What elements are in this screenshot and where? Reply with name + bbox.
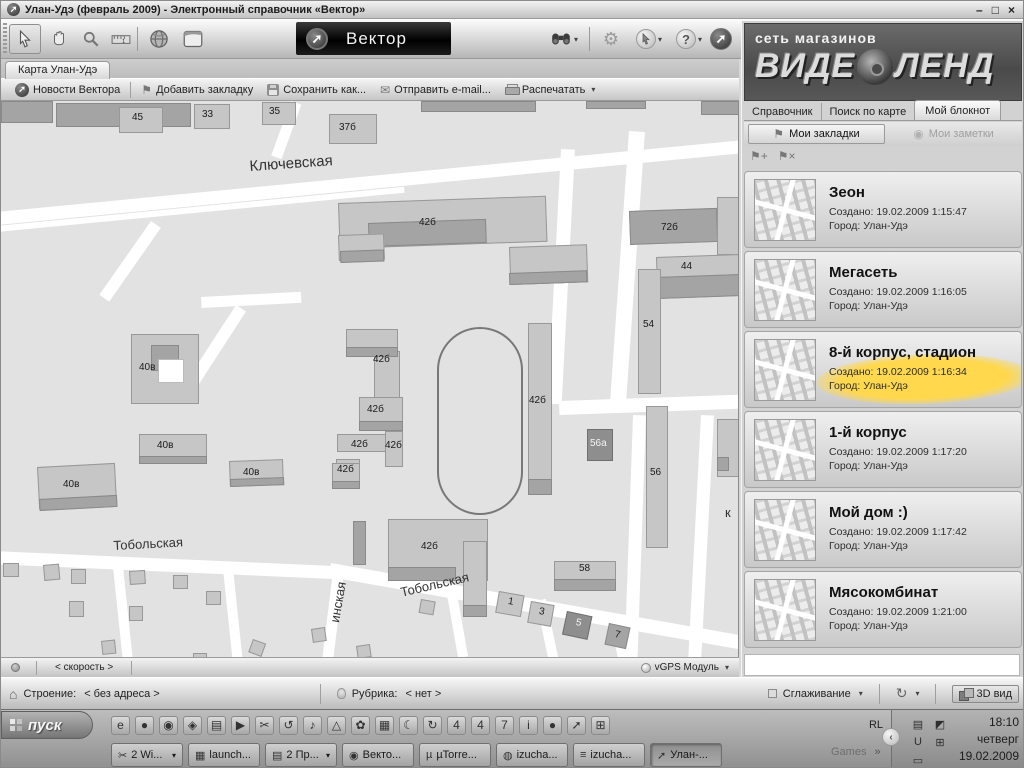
map-status-strip: < скорость > vGPS Модуль ▾ [1,657,739,677]
videoland-logo-banner: сеть магазинов ВИДЕ ЛЕНД [744,23,1022,101]
note-pin-icon: ◉ [913,127,923,141]
map-building [139,456,207,464]
map-building [206,591,221,605]
sync-icon[interactable]: ↻ [896,685,908,702]
window-button-icon: ◉ [349,749,359,762]
bookmark-city: Город: Улан-Удэ [829,299,1015,313]
map-street [201,292,301,308]
quick-launch-icon[interactable]: ● [543,716,562,735]
bookmark-thumbnail [754,419,816,481]
map-label: 44 [681,261,692,272]
vgps-icon [641,663,651,673]
map-label: 37б [339,122,356,133]
window-title: Улан-Удэ (февраль 2009) - Электронный сп… [25,4,365,16]
videoland-tagline: сеть магазинов [755,30,1011,46]
map-label: 40в [243,467,259,478]
map-building [346,347,398,357]
binoculars-icon [550,30,572,48]
save-as-button[interactable]: Сохранить как... [263,83,370,97]
map-building [586,101,646,109]
my-notes-label: Мои заметки [929,128,994,140]
taskbar-window-button[interactable]: ➚ Улан-... ▾ [650,743,722,767]
gps-led-icon [11,663,20,672]
add-bookmark-small-icon[interactable]: ⚑+ [750,149,768,167]
add-bookmark-icon: ⚑ [141,83,152,97]
quick-launch-icon[interactable]: ▤ [207,716,226,735]
bookmark-thumbnail [754,499,816,561]
window-button-label: launch... [209,749,251,761]
tray-icon-5[interactable]: ▭ [910,752,926,768]
map-street [688,415,714,657]
map-building [701,101,739,115]
map-building [528,479,552,495]
taskbar-window-button[interactable]: ✂ 2 Wi... ▾ [111,743,183,767]
window-button-icon: ➚ [657,749,666,762]
quick-launch-icon[interactable]: ● [135,716,154,735]
taskbar-window-button[interactable]: ▦ launch... ▾ [188,743,260,767]
map-building [419,599,436,615]
clock-date: 19.02.2009 [959,748,1019,765]
bookmark-list-item[interactable]: 1-й корпус Создано: 19.02.2009 1:17:20 Г… [744,411,1022,488]
map-building [509,270,587,285]
map-building [3,563,19,577]
map-building [1,101,53,123]
map-building [230,477,284,487]
house-icon: ⌂ [9,686,17,702]
title-bar: ➚ Улан-Удэ (февраль 2009) - Электронный … [1,1,1024,19]
quick-launch-icon[interactable]: ⊞ [591,716,610,735]
view-3d-button[interactable]: 3D вид [952,685,1019,703]
vector-logo-text: Вектор [346,29,407,49]
app-window: ➚ Улан-Удэ (февраль 2009) - Электронный … [0,0,1024,768]
bookmark-created: Создано: 19.02.2009 1:17:20 [829,445,1015,459]
save-icon [267,84,279,96]
map-label: 40в [63,479,79,490]
map-building [638,269,661,394]
save-as-label: Сохранить как... [283,84,366,96]
pointer-dropdown-caret[interactable]: ▾ [658,35,662,44]
map-label: 42б [529,395,546,406]
ruler-icon: 1 [111,30,131,48]
map-label: 40в [157,440,173,451]
map-building [528,323,552,495]
map-label: 56а [590,438,607,449]
window-button-icon: ✂ [118,749,127,762]
cube-icon [959,688,972,700]
minimize-button[interactable]: – [976,4,983,16]
bookmark-created: Создано: 19.02.2009 1:16:05 [829,285,1015,299]
bookmark-city: Город: Улан-Удэ [829,619,1015,633]
quick-launch-icon[interactable]: ▶ [231,716,250,735]
rubric-label: Рубрика: [352,688,398,700]
map-building [359,421,403,431]
sync-caret[interactable]: ▾ [915,689,919,698]
map-building [129,570,146,585]
bookmark-list-empty-area [744,654,1020,676]
map-label: 42б [419,217,436,228]
bookmark-title: 8-й корпус, стадион [829,344,1015,361]
quick-launch-icon[interactable]: ☾ [399,716,418,735]
pan-tool-button[interactable] [43,24,75,54]
magnifier-icon [82,30,100,48]
taskbar-window-button[interactable]: ◍ izucha... ▾ [496,743,568,767]
map-building [311,627,327,643]
quick-launch-icon[interactable]: ◈ [183,716,202,735]
quick-launch-icon[interactable]: △ [327,716,346,735]
quick-launch-icon[interactable]: ✂ [255,716,274,735]
bookmark-list-item[interactable]: Мой дом :) Создано: 19.02.2009 1:17:42 Г… [744,491,1022,568]
smoothing-caret[interactable]: ▾ [859,689,863,698]
map-label: к [725,505,731,520]
bookmark-actions-row: ⚑+ ⚑× [750,149,1020,167]
svg-text:1: 1 [122,39,125,45]
globe-icon [149,29,169,49]
tray-icon-2[interactable]: ◩ [932,716,948,732]
bookmark-city: Город: Улан-Удэ [829,219,1015,233]
map-building [101,640,116,655]
speed-button[interactable]: < скорость > [45,661,123,674]
delete-bookmark-small-icon[interactable]: ⚑× [778,149,796,167]
map-label: 33 [202,109,213,120]
map-building [43,564,60,581]
subtab-my-notes[interactable]: ◉ Мои заметки [885,124,1022,144]
map-building [353,521,366,565]
vector-arrow-icon: ➚ [710,28,732,50]
building-value: < без адреса > [84,688,160,700]
vector-home-button[interactable]: ➚ [705,24,737,54]
map-building [656,274,739,299]
notebook-subtabs: ⚑ Мои закладки ◉ Мои заметки [744,122,1022,146]
videoland-word-1: ВИДЕ [755,47,855,86]
videoland-word-2: ЛЕНД [895,47,994,86]
send-email-label: Отправить e-mail... [394,84,491,96]
close-button[interactable]: × [1008,4,1015,16]
map-building [158,359,184,383]
window-button-icon: µ [426,749,432,761]
window-button-icon: ▤ [272,749,282,762]
pointer-mode-button[interactable]: ▾ [629,24,669,54]
panel-icon [183,30,203,48]
bookmark-thumbnail [754,179,816,241]
map-label: 42б [367,404,384,415]
map-street [99,221,160,302]
select-tool-button[interactable] [9,24,41,54]
status-bar: ⌂ Строение: < без адреса > Рубрика: < не… [1,677,1024,709]
quick-launch-icon[interactable]: ◉ [159,716,178,735]
taskbar-window-button[interactable]: ≡ izucha... ▾ [573,743,645,767]
window-button-label: 2 Пр... [286,749,318,761]
map-label: 42б [373,354,390,365]
search-dropdown-caret[interactable]: ▾ [574,35,578,44]
bookmark-city: Город: Улан-Удэ [829,379,1015,393]
window-button-label: Векто... [363,749,402,761]
bookmark-list-item[interactable]: Мясокомбинат Создано: 19.02.2009 1:21:00… [744,571,1022,648]
map-label: 42б [351,439,368,450]
quick-launch-icon[interactable]: ▦ [375,716,394,735]
zoom-tool-button[interactable] [75,24,107,54]
map-building [463,605,487,617]
vgps-module-button[interactable]: vGPS Модуль ▾ [641,662,739,673]
games-label: Games [831,746,866,758]
app-logo-icon: ➚ [7,3,20,16]
map-building [356,644,372,657]
add-bookmark-label: Добавить закладку [156,84,253,96]
taskbar-clock: 18:10 четверг 19.02.2009 [959,714,1019,765]
map-building [332,481,360,489]
map-building [717,457,729,471]
bookmark-title: Мясокомбинат [829,584,1015,601]
vector-news-icon: ➚ [15,83,29,97]
quick-launch-icon[interactable]: ✿ [351,716,370,735]
map-label: Тобольская [113,534,183,553]
panel-toggle-button[interactable] [177,24,209,54]
map-label: 72б [661,222,678,233]
window-button-label: izucha... [590,749,631,761]
vgps-label: vGPS Модуль [655,662,719,673]
map-label: Ключевская [249,152,333,175]
bookmark-list-item[interactable]: 8-й корпус, стадион Создано: 19.02.2009 … [744,331,1022,408]
vector-news-label: Новости Вектора [33,84,120,96]
map-label: 54 [643,319,654,330]
print-button[interactable]: Распечатать ▾ [501,83,599,97]
taskbar-windows: ✂ 2 Wi... ▾ ▦ launch... ▾ ▤ 2 Пр... ▾ [111,741,722,768]
map-building [129,606,143,621]
view-3d-label: 3D вид [976,688,1012,700]
print-label: Распечатать [522,84,585,96]
print-dropdown-caret[interactable]: ▾ [591,85,595,94]
bookmark-created: Создано: 19.02.2009 1:15:47 [829,205,1015,219]
games-chevron-icon[interactable]: » [874,746,880,758]
bookmark-title: Мой дом :) [829,504,1015,521]
bookmark-title: Мегасеть [829,264,1015,281]
bookmark-flag-icon: ⚑ [773,127,784,141]
cd-disc-icon [857,49,893,85]
window-button-label: µTorre... [436,749,477,761]
bookmark-city: Город: Улан-Удэ [829,459,1015,473]
tab-row: Карта Улан-Удэ [1,59,739,79]
bookmark-thumbnail [754,579,816,641]
help-button[interactable]: ? ▾ [669,24,709,54]
start-label: пуск [28,717,61,734]
taskbar-window-button[interactable]: ◉ Векто... ▾ [342,743,414,767]
quick-launch-icon[interactable]: ♪ [303,716,322,735]
smoothing-checkbox[interactable] [768,689,777,698]
windows-flag-icon [10,719,22,731]
window-button-caret[interactable]: ▾ [172,751,176,760]
map-label: 58 [579,563,590,574]
map-building [173,575,188,589]
cursor-icon [16,30,34,48]
my-bookmarks-label: Мои закладки [789,128,860,140]
start-button[interactable]: пуск [1,711,93,739]
bookmark-created: Создано: 19.02.2009 1:21:00 [829,605,1015,619]
tab-directory[interactable]: Справочник [744,103,822,120]
window-button-label: 2 Wi... [131,749,162,761]
add-bookmark-button[interactable]: ⚑ Добавить закладку [137,82,257,98]
gear-icon: ⚙ [603,29,619,50]
clock-time: 18:10 [959,714,1019,731]
window-button-label: izucha... [517,749,558,761]
quick-launch-icon[interactable]: e [111,716,130,735]
map-street [223,568,243,657]
window-button-icon: ≡ [580,749,586,761]
hand-pointer-icon [636,29,656,49]
taskbar-window-button[interactable]: µ µTorre... ▾ [419,743,491,767]
map-label: 40в [139,362,155,373]
bookmark-title: Зеон [829,184,1015,201]
map-label: 45 [132,112,143,123]
bulb-icon [337,688,346,699]
quick-launch-icon[interactable]: ↻ [423,716,442,735]
bookmark-created: Создано: 19.02.2009 1:17:42 [829,525,1015,539]
window-button-icon: ◍ [503,749,513,762]
send-email-button[interactable]: ✉ Отправить e-mail... [376,82,495,98]
vector-brand-banner: ➚ Вектор [296,22,451,55]
mail-icon: ✉ [380,83,390,97]
bookmark-created: Создано: 19.02.2009 1:16:34 [829,365,1015,379]
window-button-caret[interactable]: ▾ [326,751,330,760]
sidebar-tabs: Справочник Поиск по карте Мой блокнот [744,101,1022,121]
map-building [71,569,86,584]
rubric-value: < нет > [405,688,441,700]
clock-day: четверг [959,731,1019,748]
map-label: 35 [269,106,280,117]
search-button[interactable]: ▾ [544,24,584,54]
vgps-caret[interactable]: ▾ [725,663,729,672]
bookmark-title: 1-й корпус [829,424,1015,441]
smoothing-label: Сглаживание [783,688,851,700]
bookmark-thumbnail [754,259,816,321]
quick-launch-bar: e●◉◈▤▶✂↺♪△✿▦☾↻447i●➚⊞ [111,712,610,738]
globe-button[interactable] [143,24,175,54]
settings-button[interactable]: ⚙ [595,24,627,54]
map-label: 42б [385,440,402,451]
bookmark-thumbnail [754,339,816,401]
quick-launch-icon[interactable]: ➚ [567,716,586,735]
map-building [340,249,384,263]
bookmark-list: Зеон Создано: 19.02.2009 1:15:47 Город: … [744,171,1022,651]
map-building [554,579,616,591]
bookmark-list-item[interactable]: Зеон Создано: 19.02.2009 1:15:47 Город: … [744,171,1022,248]
tray-icon-3[interactable]: U [910,734,926,750]
sidebar-panel: сеть магазинов ВИДЕ ЛЕНД Справочник Поис… [741,21,1024,677]
window-button-label: Улан-... [670,749,708,761]
map-building [69,601,84,617]
system-tray: ‹ ▤ ◩ U ⊞ ▭ 18:10 четверг 19.02.2009 [891,710,1024,768]
building-label: Строение: [23,688,76,700]
tray-icon-4[interactable]: ⊞ [932,734,948,750]
quick-launch-icon[interactable]: ↺ [279,716,298,735]
tab-map-search[interactable]: Поиск по карте [822,103,915,120]
taskbar: пуск e●◉◈▤▶✂↺♪△✿▦☾↻447i●➚⊞ RL ‹ ▤ ◩ U ⊞ … [1,709,1024,768]
tab-map-ulan-ude[interactable]: Карта Улан-Удэ [5,61,110,79]
tray-chevron-button[interactable]: ‹ [882,728,900,746]
stadium-outline [437,327,523,515]
map-building [248,639,266,657]
window-button-icon: ▦ [195,749,205,762]
vector-news-button[interactable]: ➚ Новости Вектора [11,82,124,98]
help-icon: ? [676,29,696,49]
restore-button[interactable]: □ [992,4,999,16]
map-label: 42б [421,541,438,552]
bookmark-list-item[interactable]: Мегасеть Создано: 19.02.2009 1:16:05 Гор… [744,251,1022,328]
vector-logo-icon: ➚ [306,28,328,50]
games-toolbar: Games » [831,746,881,758]
map-building [421,101,536,112]
quick-launch-icon[interactable]: i [519,716,538,735]
quick-launch-icon[interactable]: 4 [447,716,466,735]
help-dropdown-caret[interactable]: ▾ [698,35,702,44]
map-canvas[interactable]: 45333537б42б72б445440в42б42б42б42б42б42б… [1,101,739,657]
subtab-my-bookmarks[interactable]: ⚑ Мои закладки [748,124,885,144]
map-building [717,197,739,255]
hand-icon [50,30,68,48]
map-label: 42б [337,464,354,475]
bookmark-city: Город: Улан-Удэ [829,539,1015,553]
tray-icon-1[interactable]: ▤ [910,716,926,732]
quick-launch-icon[interactable]: 4 [471,716,490,735]
map-label: 56 [650,467,661,478]
tab-notebook[interactable]: Мой блокнот [914,100,1001,120]
printer-icon [505,84,518,95]
quick-launch-icon[interactable]: 7 [495,716,514,735]
toolbar-grip [3,23,7,54]
taskbar-window-button[interactable]: ▤ 2 Пр... ▾ [265,743,337,767]
actions-toolbar: ➚ Новости Вектора ⚑ Добавить закладку Со… [1,79,739,101]
measure-tool-button[interactable]: 1 [105,24,137,54]
